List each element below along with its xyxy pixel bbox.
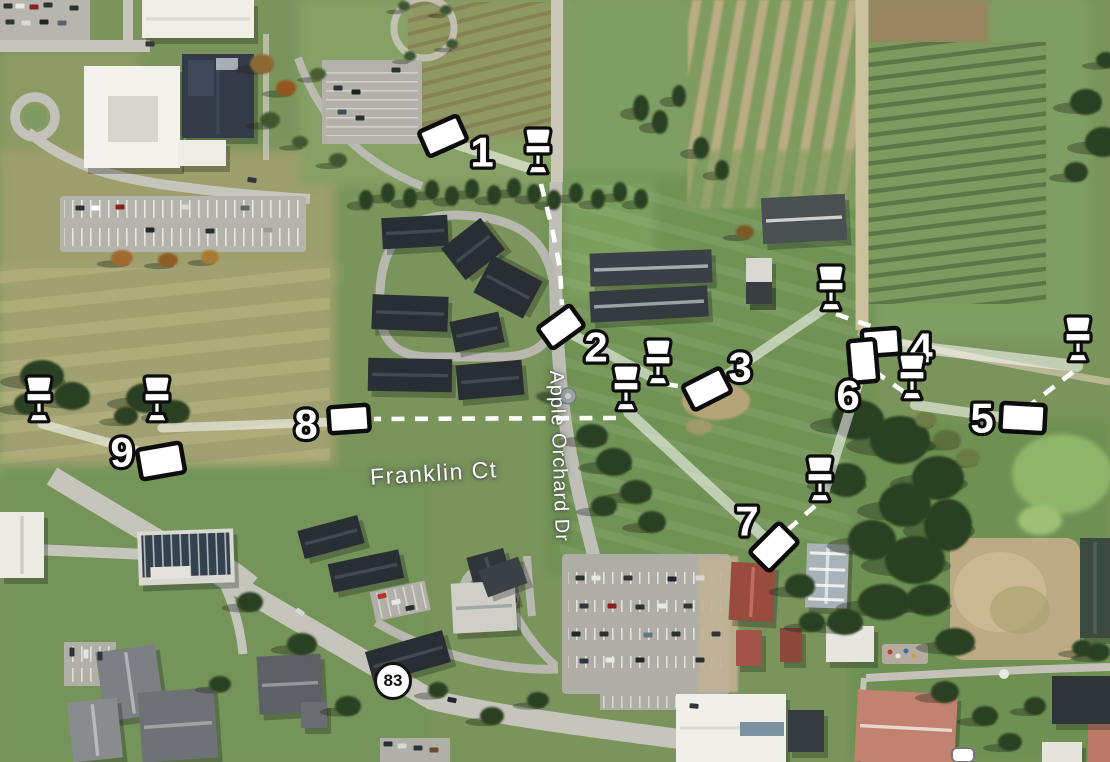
hole-5-tee-pad[interactable] [1000, 403, 1045, 433]
hole-8-number: 8 [294, 401, 317, 448]
map-canvas[interactable]: Franklin Ct Apple Orchard Dr 83 12345678… [0, 0, 1110, 762]
hole-8-basket-icon[interactable] [144, 376, 170, 422]
hole-6-number: 6 [836, 372, 859, 419]
hole-5-number: 5 [970, 395, 993, 442]
hole-1-number: 1 [470, 129, 493, 176]
hole-3-number: 3 [728, 344, 751, 391]
course-overlay: 123456789 [0, 0, 1110, 762]
hole-6-basket-icon[interactable] [807, 456, 833, 502]
hole-8-tee-pad[interactable] [328, 405, 370, 434]
hole-1-walk-path [541, 184, 562, 305]
hole-2-basket-icon[interactable] [645, 339, 671, 385]
hole-3-tee-pad[interactable] [682, 367, 732, 410]
hole-2-fairway [566, 331, 655, 379]
hole-9-tee-pad[interactable] [137, 442, 186, 479]
hole-7-number: 7 [735, 498, 758, 545]
hole-7-basket-icon[interactable] [613, 365, 639, 411]
hole-7-walk-path [374, 418, 616, 419]
hole-5-basket-icon[interactable] [899, 354, 925, 400]
hole-9-basket-icon[interactable] [26, 376, 52, 422]
hole-1-basket-icon[interactable] [525, 128, 551, 174]
hole-2-number: 2 [584, 324, 607, 371]
hole-3-walk-path [836, 314, 876, 328]
hole-9-number: 9 [110, 429, 133, 476]
hole-3-basket-icon[interactable] [818, 265, 844, 311]
hole-4-basket-icon[interactable] [1065, 316, 1091, 362]
hole-4-walk-path [1029, 372, 1073, 406]
